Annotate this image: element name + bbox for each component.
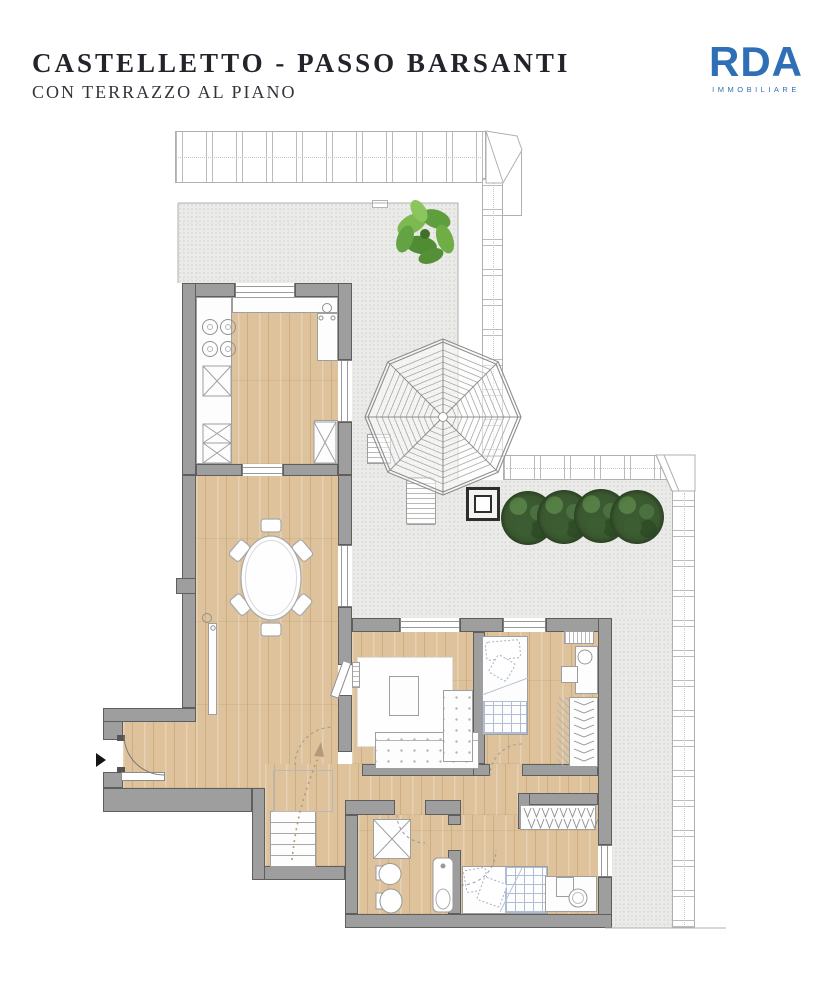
radiator — [208, 623, 217, 715]
terrace-bench — [367, 434, 391, 464]
floor-plan-page: CASTELLETTO - PASSO BARSANTI CON TERRAZZ… — [0, 0, 827, 1000]
entrance-door-leaf — [121, 772, 165, 781]
wall-segment — [176, 578, 196, 594]
window — [338, 360, 352, 422]
kitchen-cabinet — [314, 420, 338, 464]
wall-segment — [338, 695, 352, 752]
door-jamb — [117, 735, 125, 741]
wall-segment — [448, 815, 461, 825]
wall-segment — [598, 618, 612, 845]
wardrobe-hatch — [557, 697, 569, 767]
wall-segment — [103, 788, 252, 812]
terrace-right-strip — [610, 618, 672, 928]
window — [235, 283, 295, 297]
wardrobe — [569, 697, 598, 767]
coffee-table — [389, 676, 419, 716]
wall-segment — [425, 800, 461, 815]
window — [503, 618, 546, 632]
floor-dining — [196, 464, 338, 788]
wall-segment — [338, 422, 352, 475]
desk — [575, 646, 598, 694]
wall-segment — [338, 283, 352, 360]
sun-lounger — [406, 477, 436, 525]
doorway-frame — [242, 464, 283, 476]
wall-segment — [518, 793, 598, 805]
wall-segment — [460, 618, 503, 632]
roof-edge-right-1 — [482, 178, 503, 457]
wall-segment — [182, 283, 196, 475]
entrance-arrow-icon — [96, 753, 106, 767]
hedge-bush — [610, 490, 664, 544]
bed-blanket — [483, 701, 527, 734]
bed-blanket — [505, 867, 547, 913]
radiator — [352, 662, 360, 688]
roof-edge-mid — [503, 455, 673, 480]
wall-segment — [196, 464, 242, 476]
kitchen-sink-counter — [317, 313, 338, 361]
kitchen-counter — [196, 297, 232, 464]
wall-segment — [103, 772, 123, 788]
radiator — [564, 631, 594, 644]
chaise-lounge — [443, 690, 473, 762]
wall-segment — [252, 866, 345, 880]
window — [400, 618, 460, 632]
desk-box — [556, 877, 574, 897]
wall-segment — [345, 800, 395, 815]
floor-plan — [0, 0, 827, 1000]
window — [598, 845, 612, 877]
wall-segment — [252, 788, 265, 880]
wall-segment — [338, 607, 352, 665]
wall-segment — [283, 464, 338, 476]
kitchen-counter — [232, 297, 338, 313]
roof-edge-top — [175, 131, 486, 183]
wall-segment — [338, 475, 352, 545]
side-table — [561, 666, 578, 683]
stair-rail — [273, 770, 333, 812]
shower — [373, 819, 411, 859]
french-door — [338, 545, 352, 607]
wall-segment — [352, 618, 400, 632]
planter — [466, 487, 500, 521]
wall-segment — [345, 815, 358, 914]
wall-segment — [448, 850, 461, 914]
walk-in-closet — [520, 805, 596, 830]
roof-edge-right-2 — [672, 490, 695, 928]
terrace-notch — [372, 200, 388, 208]
wall-segment — [103, 708, 196, 722]
wall-segment — [345, 914, 612, 928]
staircase — [270, 811, 316, 867]
